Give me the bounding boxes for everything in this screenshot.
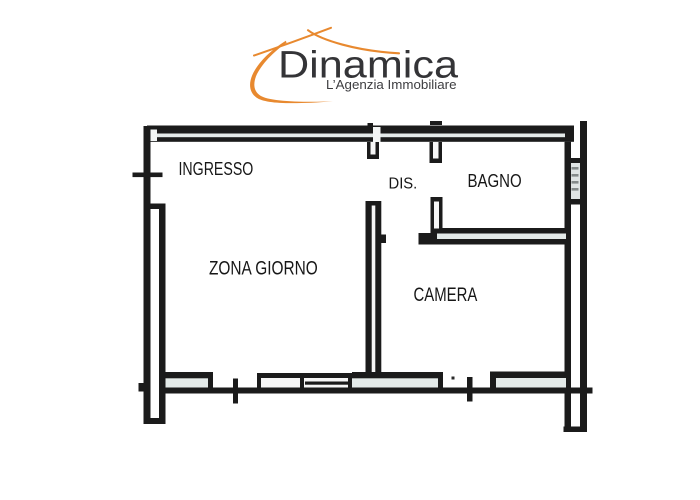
svg-text:BAGNO: BAGNO	[468, 170, 522, 191]
svg-text:INGRESSO: INGRESSO	[179, 158, 254, 179]
svg-text:L’Agenzia Immobiliare: L’Agenzia Immobiliare	[326, 77, 457, 92]
svg-text:ZONA GIORNO: ZONA GIORNO	[209, 258, 318, 280]
svg-text:CAMERA: CAMERA	[414, 284, 478, 306]
svg-text:DIS.: DIS.	[389, 175, 418, 192]
